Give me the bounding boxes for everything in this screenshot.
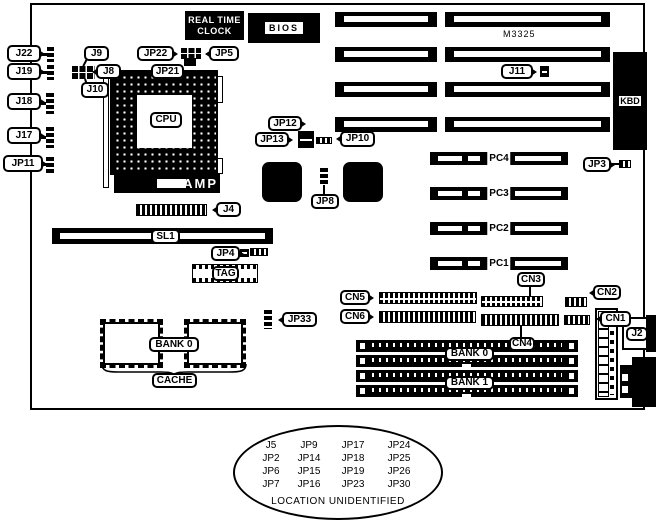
real-time-clock-chip: REAL TIME CLOCK [185, 11, 244, 40]
jumper-name: JP30 [379, 478, 419, 491]
jp8-connector [320, 168, 328, 185]
isa-slot [335, 12, 437, 27]
din-notch [622, 386, 628, 393]
location-unidentified-note: J5 JP9 JP17 JP24 JP2 JP14 JP18 JP25 JP6 … [233, 425, 443, 520]
pci-slot-pc4: PC4 [430, 152, 568, 165]
jumper-name: JP6 [257, 465, 285, 478]
callout-cn5: CN5 [340, 290, 370, 305]
callout-jp13: JP13 [255, 132, 289, 147]
cn2-header [565, 297, 587, 307]
callout-jp21: JP21 [151, 64, 184, 79]
isa-slot [445, 82, 610, 97]
jumper-name: JP26 [379, 465, 419, 478]
jumper-name: JP9 [291, 439, 327, 452]
isa-slot [335, 47, 437, 62]
callout-jp33: JP33 [282, 312, 317, 327]
callout-jp3: JP3 [583, 157, 611, 172]
callout-tag: TAG [212, 266, 239, 281]
callout-j19: J19 [7, 63, 41, 80]
motherboard-diagram: REAL TIME CLOCK BIOS M3325 J11 KBD CPU A… [0, 0, 656, 524]
jumper-name: JP17 [333, 439, 373, 452]
callout-cache-bank0: BANK 0 [149, 337, 199, 352]
jumper-name: JP15 [291, 465, 327, 478]
cn3-header [481, 296, 543, 307]
socket-tab [217, 158, 223, 174]
rtc-label-line2: CLOCK [197, 26, 232, 37]
callout-cn6: CN6 [340, 309, 370, 324]
callout-j18: J18 [7, 93, 41, 110]
cn6-header [379, 311, 476, 323]
callout-cache: CACHE [152, 373, 197, 388]
din-keyboard-connector [632, 357, 656, 407]
din-notch [622, 374, 628, 381]
isa-slot [445, 12, 610, 27]
bios-label: BIOS [265, 22, 303, 34]
pci-slot-pc1: PC1 [430, 257, 568, 270]
jp33-connector [264, 310, 272, 329]
callout-j11: J11 [501, 64, 533, 79]
cn4-header [481, 314, 559, 326]
callout-sl1: SL1 [151, 229, 180, 244]
jumper-name: JP23 [333, 478, 373, 491]
callout-j22: J22 [7, 45, 41, 62]
jumper-name: J5 [257, 439, 285, 452]
jp13-connector [298, 131, 314, 148]
callout-j2: J2 [626, 327, 648, 341]
kbd-label: KBD [618, 95, 642, 107]
j11-connector [540, 66, 549, 77]
callout-cn2: CN2 [593, 285, 621, 300]
amp-socket-bar: AMP [114, 174, 220, 193]
jumper-name: JP14 [291, 452, 327, 465]
unidentified-jumper-list: J5 JP9 JP17 JP24 JP2 JP14 JP18 JP25 JP6 … [257, 439, 419, 491]
rtc-label-line1: REAL TIME [188, 15, 241, 26]
callout-jp4: JP4 [211, 246, 240, 261]
pci-slot-pc2: PC2 [430, 222, 568, 235]
callout-j9: J9 [84, 46, 109, 61]
jumper-name: JP2 [257, 452, 285, 465]
jumper-name: JP18 [333, 452, 373, 465]
pc4-label: PC4 [487, 152, 510, 165]
jp3-connector [619, 160, 631, 168]
jp10-connector [316, 137, 332, 144]
callout-jp5: JP5 [209, 46, 239, 61]
jumper-name: JP19 [333, 465, 373, 478]
callout-jp11: JP11 [3, 155, 43, 172]
unidentified-note-text: LOCATION UNIDENTIFIED [271, 496, 405, 507]
isa-slot [445, 117, 610, 132]
callout-jp10: JP10 [340, 131, 375, 147]
jumper-name: JP24 [379, 439, 419, 452]
jumper-name: JP25 [379, 452, 419, 465]
qfp-chip [262, 162, 302, 202]
pc1-label: PC1 [487, 257, 510, 270]
callout-bank1: BANK 1 [445, 376, 494, 390]
din-connector-step [620, 365, 632, 398]
jumper-name: JP7 [257, 478, 285, 491]
callout-cn4: CN4 [509, 337, 535, 351]
socket-tab [217, 76, 223, 103]
callout-jp8: JP8 [311, 194, 339, 209]
cn5-header [379, 292, 477, 304]
callout-j17: J17 [7, 127, 41, 144]
callout-jp12: JP12 [268, 116, 302, 131]
callout-j4: J4 [216, 202, 241, 217]
callout-cpu: CPU [150, 112, 182, 128]
keyboard-connector: KBD [613, 52, 647, 150]
bios-chip: BIOS [248, 13, 320, 43]
qfp-chip [343, 162, 383, 202]
jp4-header [250, 248, 268, 256]
callout-jp22: JP22 [137, 46, 174, 61]
callout-cn1: CN1 [600, 311, 631, 327]
j4-connector [136, 204, 207, 216]
callout-bank0: BANK 0 [445, 347, 494, 361]
isa-slot [335, 117, 437, 132]
pc3-label: PC3 [487, 187, 510, 200]
pc2-label: PC2 [487, 222, 510, 235]
board-model-text: M3325 [503, 29, 536, 39]
isa-slot [445, 47, 610, 62]
callout-j10: J10 [81, 82, 109, 98]
pci-slot-pc3: PC3 [430, 187, 568, 200]
pointer-line [323, 185, 325, 194]
pointer-line [529, 287, 531, 297]
callout-cn3: CN3 [517, 272, 545, 287]
callout-j8: J8 [96, 64, 121, 79]
amp-label: AMP [183, 176, 218, 191]
jumper-name: JP16 [291, 478, 327, 491]
isa-slot [335, 82, 437, 97]
amp-slot [157, 179, 186, 188]
cn1-header [564, 315, 590, 325]
